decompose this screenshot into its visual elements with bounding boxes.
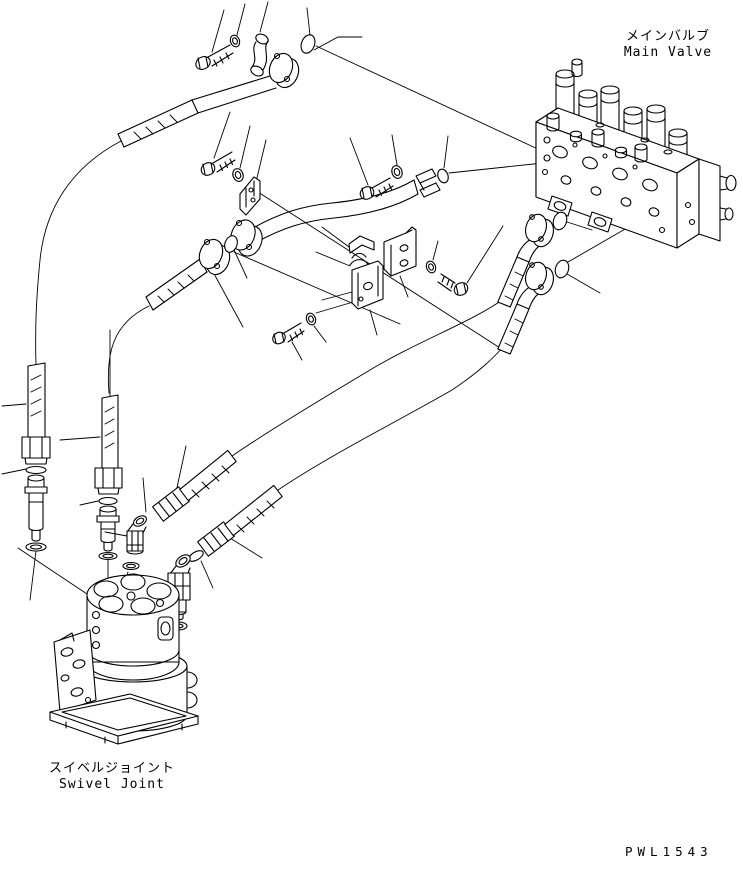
swivel-top-ports (87, 574, 179, 615)
o-ring (26, 467, 46, 474)
clamp-plate (352, 261, 383, 309)
split-flange (416, 169, 440, 197)
washer (305, 312, 318, 326)
valve-right-face (677, 159, 699, 248)
hose-flange (522, 212, 557, 250)
o-ring (123, 563, 139, 570)
hex-nut (95, 468, 122, 494)
clamp-bolt-assembly (271, 312, 318, 346)
swivel-side-bracket (54, 630, 96, 712)
inlet-tube-assembly (118, 32, 317, 147)
tube-body (118, 76, 276, 147)
bolt (199, 152, 235, 178)
swivel-joint-label-jp: スイベルジョイント (49, 761, 175, 776)
suction-tube-assembly (146, 234, 240, 310)
clamp-bracket-plate (240, 177, 260, 215)
bolt (271, 323, 304, 346)
parts-diagram-sheet: メインバルブ Main Valve スイベルジョイント Swivel Joint… (0, 0, 743, 875)
bolt (438, 274, 470, 298)
o-ring (99, 553, 117, 560)
vertical-pipe-1 (22, 363, 50, 551)
tube-flange (265, 50, 303, 91)
washer (390, 164, 404, 180)
hex-nut (22, 437, 50, 464)
main-valve-label-jp: メインバルブ (626, 28, 710, 44)
tube-body (253, 180, 418, 243)
nipple-fitting (97, 506, 119, 551)
swivel-joint-label-en: Swivel Joint (59, 777, 165, 792)
swivel-joint (50, 574, 198, 744)
vertical-pipe-2 (95, 395, 122, 560)
clamp-bracket (384, 227, 416, 276)
parts-diagram-canvas: メインバルブ Main Valve スイベルジョイント Swivel Joint… (0, 0, 743, 875)
split-flange-half (249, 32, 270, 78)
main-valve-label-en: Main Valve (624, 45, 712, 60)
hose-b (198, 258, 571, 556)
drawing-code: PWL1543 (625, 844, 713, 859)
clamp-half (349, 236, 374, 265)
pipe-shaft (28, 363, 45, 437)
o-ring (299, 33, 318, 55)
tube-body (146, 259, 207, 310)
hose-clamp-assembly (349, 227, 470, 309)
washer (231, 167, 245, 183)
washer (425, 260, 438, 274)
hose-shaft (180, 450, 236, 500)
elbow-fitting-1 (123, 514, 148, 570)
o-ring (436, 168, 450, 185)
o-ring (99, 498, 117, 505)
valve-end-block (699, 159, 720, 241)
nipple-fitting (25, 475, 47, 541)
hose-shaft (225, 485, 282, 535)
pipe-shaft (102, 395, 118, 468)
washer (229, 34, 242, 48)
bolt (358, 178, 393, 202)
o-ring (26, 543, 46, 551)
